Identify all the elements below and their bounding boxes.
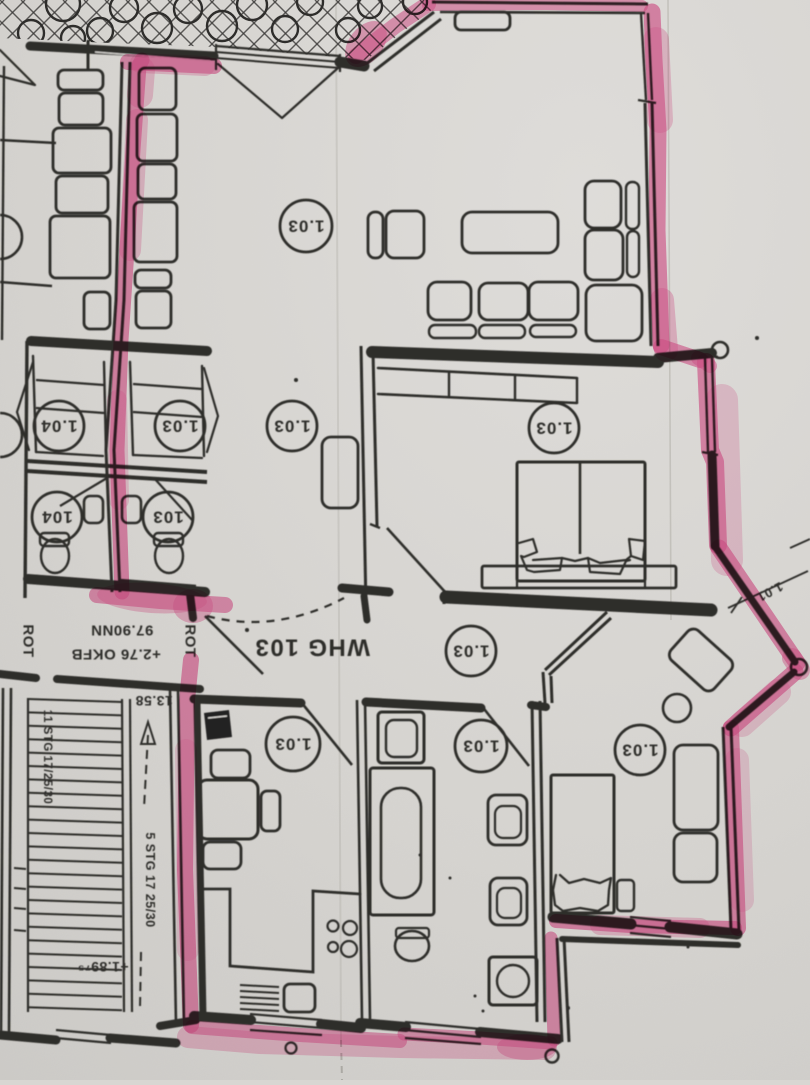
svg-text:13.58: 13.58 [135,693,173,709]
svg-text:WHG 103: WHG 103 [254,634,370,661]
svg-text:1.03: 1.03 [273,417,310,436]
svg-text:1.03: 1.03 [287,217,324,236]
svg-text:1.03: 1.03 [621,741,658,760]
svg-text:ROT: ROT [20,624,37,657]
svg-text:1.03: 1.03 [462,737,499,756]
svg-text:103: 103 [152,508,183,527]
svg-text:1.03: 1.03 [274,735,311,754]
svg-text:+2.76 OKFB: +2.76 OKFB [71,646,161,663]
svg-text:1.03: 1.03 [535,419,572,438]
svg-text:11 STG 17/25/30: 11 STG 17/25/30 [41,710,53,804]
svg-text:104: 104 [41,508,72,527]
svg-text:1.04: 1.04 [40,417,77,436]
svg-text:+1.89⁷⁵: +1.89⁷⁵ [77,959,128,975]
svg-text:1.03: 1.03 [161,417,198,436]
svg-text:97.90NN: 97.90NN [91,622,154,639]
svg-text:5 STG 17 25/30: 5 STG 17 25/30 [143,832,157,927]
svg-text:1.03: 1.03 [452,642,489,661]
